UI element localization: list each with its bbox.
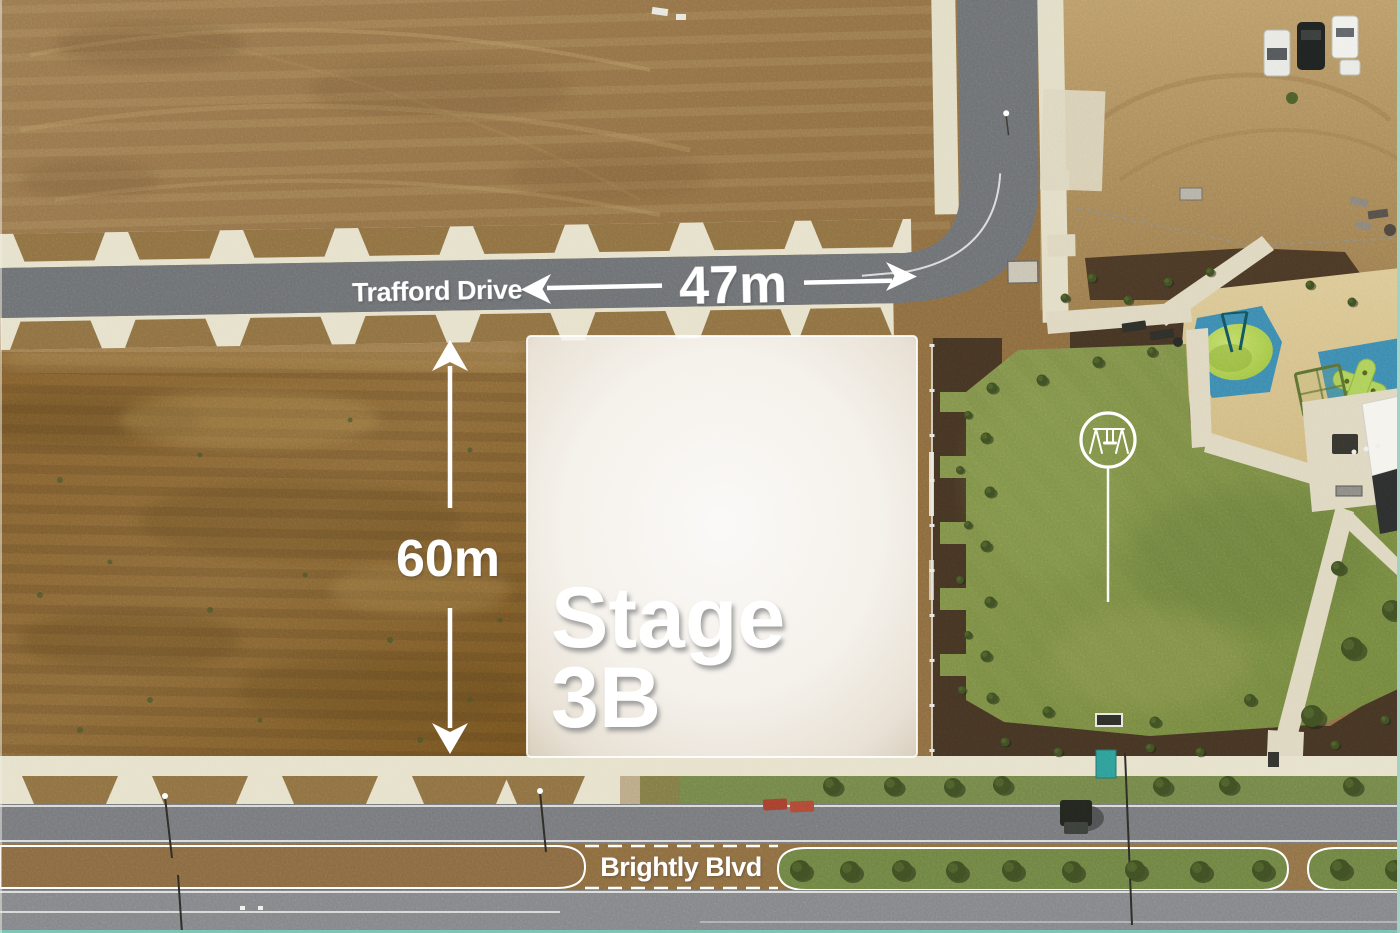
aerial-site-photo: Stage 3B Trafford Drive 47m 60m Brightly… xyxy=(0,0,1400,933)
dimension-label-47m: 47m xyxy=(678,254,787,316)
aerial-scene: Stage 3B Trafford Drive 47m 60m Brightly… xyxy=(0,0,1400,933)
dimension-label-60m: 60m xyxy=(396,530,500,588)
street-label-brightly-blvd: Brightly Blvd xyxy=(600,852,762,882)
stage-label-line2: 3B xyxy=(551,650,661,746)
street-label-trafford-drive: Trafford Drive xyxy=(352,274,523,307)
